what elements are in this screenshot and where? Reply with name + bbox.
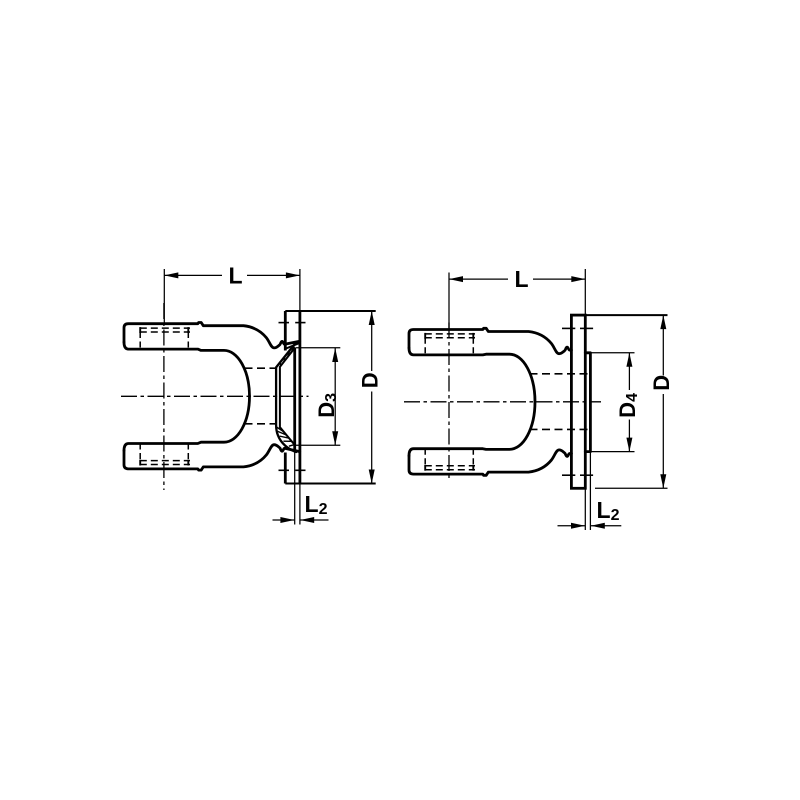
svg-text:D: D xyxy=(358,372,383,388)
svg-text:L: L xyxy=(229,263,243,289)
svg-text:L: L xyxy=(515,266,529,292)
svg-text:D: D xyxy=(649,375,674,391)
